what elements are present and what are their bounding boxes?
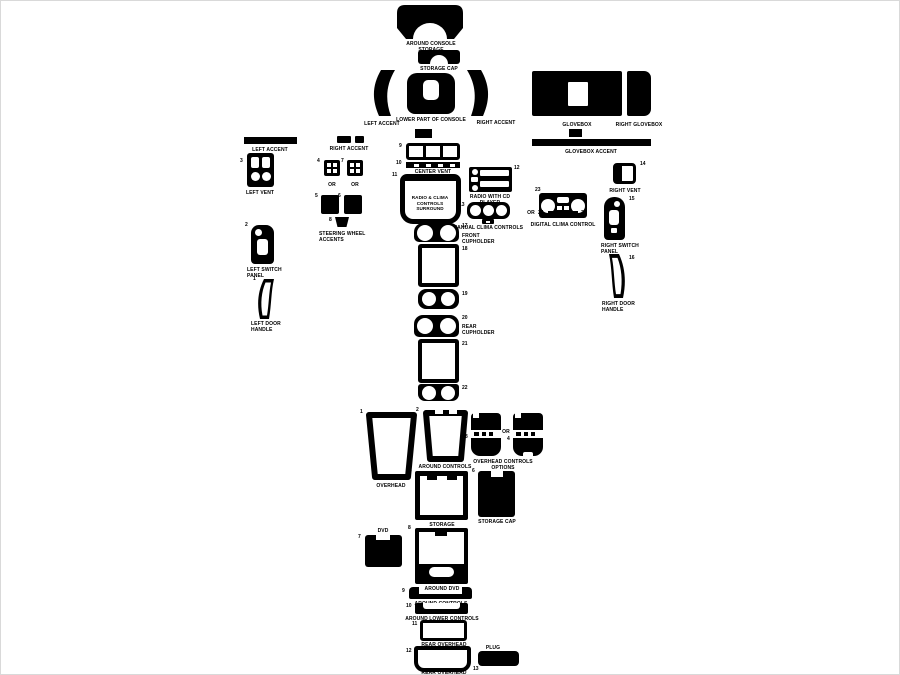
mid-cupholder-shape <box>418 289 459 309</box>
dvd-num: 7 <box>358 535 361 540</box>
center-vent-trim-num: 10 <box>396 161 402 166</box>
radio-surround-shape: RADIO & CLIMA CONTROLS SURROUND <box>400 174 461 224</box>
right-vent-shape <box>613 163 636 184</box>
lower-part-of-console-label: LOWER PART OF CONSOLE <box>391 117 471 123</box>
rear-overhead-small-num: 11 <box>412 622 417 627</box>
radio-cd-num: 12 <box>514 166 520 171</box>
sw-option-b-shape <box>347 160 363 176</box>
around-controls-lower-shape <box>409 587 472 599</box>
rear-overhead-large-shape <box>414 646 471 672</box>
left-accent-shape <box>244 137 297 144</box>
storage-cap-lower-num: 6 <box>472 469 475 474</box>
sw-option-b-num: 7 <box>341 159 344 164</box>
front-cupholder-label: FRONT CUPHOLDER <box>462 233 494 246</box>
digital-clima-num: 23 <box>535 188 541 193</box>
sw-left-num: 5 <box>315 194 318 199</box>
storage-cap-top-label: STORAGE CAP <box>409 66 469 72</box>
center-vent-shape <box>406 143 460 160</box>
overhead-option-b-shape <box>513 413 543 456</box>
digital-clima-bar-left <box>548 211 556 215</box>
lower-part-of-console-shape <box>407 73 455 114</box>
around-lower-controls-num: 10 <box>406 604 412 609</box>
radio-cd-shape <box>469 167 512 192</box>
sw-center-shape <box>335 217 349 227</box>
around-controls-label: AROUND CONTROLS <box>410 464 480 470</box>
center-stack-clip-shape <box>415 129 432 138</box>
sw-left-shape <box>321 195 339 214</box>
right-accent-shape-b <box>355 136 364 143</box>
left-switch-panel-num: 2 <box>245 223 248 228</box>
sw-or-b: OR <box>345 182 365 188</box>
storage-cap-top-shape <box>418 50 460 64</box>
plug-num: 13 <box>473 667 479 672</box>
overhead-option-a-num: 3 <box>465 435 468 440</box>
around-dvd-shape <box>415 528 468 584</box>
plug-shape <box>478 651 519 666</box>
center-vent-trim-shape <box>406 162 460 168</box>
rear-cup-insert-num: 22 <box>462 386 468 391</box>
console-right-accent-label: RIGHT ACCENT <box>466 120 526 126</box>
storage-cap-lower-shape <box>478 471 515 517</box>
around-dvd-num: 8 <box>408 526 411 531</box>
mid-cupholder-num: 19 <box>462 292 468 297</box>
steering-wheel-accents-label: STEERING WHEEL ACCENTS <box>319 231 367 244</box>
left-door-handle-shape <box>257 279 277 319</box>
dvd-shape <box>365 535 402 567</box>
rear-console-frame-num: 21 <box>462 342 468 347</box>
front-console-frame-shape <box>418 244 459 287</box>
right-vent-num: 14 <box>640 162 646 167</box>
digital-clima-label: DIGITAL CLIMA CONTROL <box>525 222 601 228</box>
front-cupholder-shape <box>414 223 459 242</box>
storage-cap-lower-label: STORAGE CAP <box>467 519 527 525</box>
right-door-handle-num: 16 <box>629 256 635 261</box>
digital-clima-num-right: 25 <box>581 211 587 216</box>
console-right-accent-shape <box>465 70 493 116</box>
right-door-handle-label: RIGHT DOOR HANDLE <box>602 301 638 314</box>
sw-option-a-shape <box>324 160 340 176</box>
left-door-handle-label: LEFT DOOR HANDLE <box>251 321 285 334</box>
digital-clima-num-left: 24 <box>538 211 544 216</box>
left-vent-num: 3 <box>240 159 243 164</box>
around-controls-lower-num: 9 <box>402 589 405 594</box>
glovebox-accent-shape <box>532 139 651 146</box>
sw-or-a: OR <box>322 182 342 188</box>
left-vent-label: LEFT VENT <box>235 190 285 196</box>
left-switch-panel-shape <box>251 225 274 264</box>
right-vent-label: RIGHT VENT <box>600 188 650 194</box>
sw-center-num: 8 <box>329 218 332 223</box>
rear-overhead-large-label: REAR OVERHEAD <box>414 670 474 675</box>
right-accent-label: RIGHT ACCENT <box>319 146 379 152</box>
console-left-accent-shape <box>369 70 397 116</box>
overhead-options-or: OR <box>499 429 513 435</box>
left-vent-shape <box>247 153 274 187</box>
around-lower-controls-shape <box>415 603 468 614</box>
manual-clima-label: MANUAL CLIMA CONTROLS <box>449 225 527 231</box>
rear-cup-insert-shape <box>418 384 459 401</box>
manual-clima-tab-shape <box>482 219 494 224</box>
rear-cupholder-shape <box>414 315 459 337</box>
radio-surround-num: 11 <box>392 173 397 178</box>
dvd-label: DVD <box>363 528 403 534</box>
glovebox-label: GLOVEBOX <box>547 122 607 128</box>
storage-shape <box>415 471 468 520</box>
storage-num: 5 <box>409 469 412 474</box>
sw-right-shape <box>344 195 362 214</box>
overhead-label: OVERHEAD <box>366 483 416 489</box>
rear-overhead-small-shape <box>420 620 467 641</box>
glovebox-shape <box>532 71 622 116</box>
center-vent-num: 9 <box>399 144 402 149</box>
rear-console-frame-shape <box>418 339 459 383</box>
manual-clima-shape <box>467 202 510 219</box>
dash-trim-kit-diagram: AROUND CONSOLE STORAGE STORAGE CAP LEFT … <box>0 0 900 675</box>
overhead-option-b-num: 4 <box>507 437 510 442</box>
around-controls-shape <box>422 410 469 462</box>
overhead-option-a-shape <box>471 413 501 456</box>
overhead-num: 1 <box>360 410 363 415</box>
right-switch-panel-num: 15 <box>629 197 635 202</box>
rear-cupholder-label: REAR CUPHOLDER <box>462 324 494 337</box>
right-accent-shape-a <box>337 136 351 143</box>
glovebox-accent-label: GLOVEBOX ACCENT <box>551 149 631 155</box>
sw-option-a-num: 4 <box>317 159 320 164</box>
overhead-controls-options-label: OVERHEAD CONTROLS OPTIONS <box>471 459 535 472</box>
around-controls-num: 2 <box>416 408 419 413</box>
glovebox-accent-clip-shape <box>569 129 582 137</box>
right-glovebox-label: RIGHT GLOVEBOX <box>604 122 674 128</box>
sw-right-num: 6 <box>338 194 341 199</box>
front-cupholder-num: 17 <box>462 224 468 229</box>
right-switch-panel-shape <box>604 197 625 240</box>
manual-clima-num: 13 <box>459 203 465 208</box>
rear-overhead-large-num: 12 <box>406 649 412 654</box>
digital-clima-shape <box>539 193 587 218</box>
left-door-handle-num: 1 <box>253 277 256 282</box>
around-console-storage-shape <box>397 5 463 39</box>
front-console-frame-num: 18 <box>462 247 468 252</box>
right-glovebox-shape <box>627 71 651 116</box>
radio-surround-label: RADIO & CLIMA CONTROLS SURROUND <box>409 195 451 212</box>
digital-clima-bar-right <box>570 211 578 215</box>
rear-cupholder-num: 20 <box>462 316 468 321</box>
right-door-handle-shape <box>606 254 626 298</box>
clima-or: OR <box>523 210 539 216</box>
